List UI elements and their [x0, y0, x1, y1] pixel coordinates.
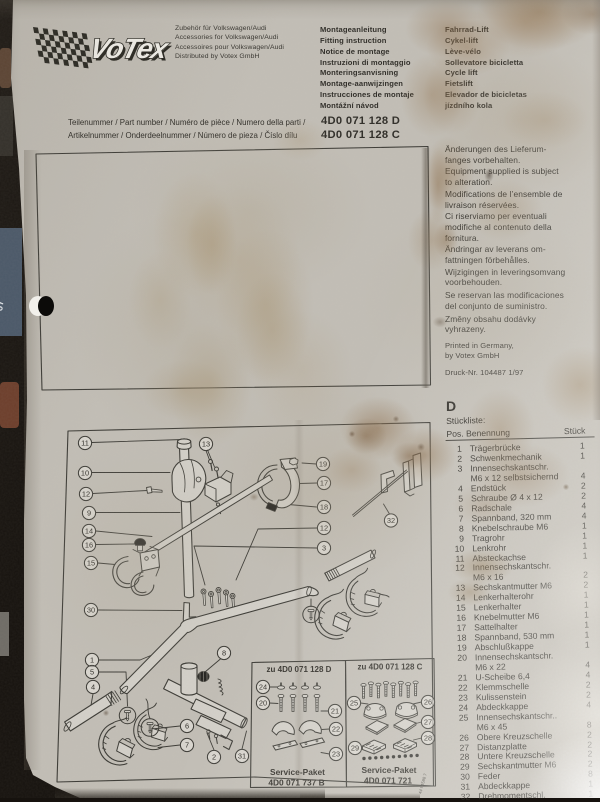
svg-text:24: 24 — [259, 683, 267, 692]
svg-text:3: 3 — [322, 544, 326, 553]
svg-text:VoTex: VoTex — [86, 33, 172, 65]
svg-text:4D0 071 737 B: 4D0 071 737 B — [268, 778, 324, 788]
svg-text:10: 10 — [81, 469, 89, 478]
svg-text:26: 26 — [424, 698, 432, 707]
svg-text:18: 18 — [320, 503, 328, 512]
svg-text:9: 9 — [87, 509, 91, 518]
svg-text:zu 4D0 071 128 D: zu 4D0 071 128 D — [267, 665, 332, 674]
svg-text:22: 22 — [332, 725, 340, 734]
svg-text:1: 1 — [90, 656, 94, 665]
svg-text:4D0 071 721: 4D0 071 721 — [364, 776, 412, 786]
svg-text:25: 25 — [350, 699, 358, 708]
svg-text:16: 16 — [85, 541, 93, 550]
svg-text:8: 8 — [222, 649, 226, 658]
svg-text:7: 7 — [185, 741, 189, 750]
svg-text:12: 12 — [320, 524, 328, 533]
svg-text:44 I 4598 7: 44 I 4598 7 — [417, 772, 427, 794]
svg-text:31: 31 — [238, 752, 246, 761]
svg-text:20: 20 — [259, 699, 267, 708]
svg-text:zu 4D0 071 128 C: zu 4D0 071 128 C — [358, 663, 423, 672]
svg-text:32: 32 — [387, 516, 395, 525]
svg-text:14: 14 — [85, 527, 93, 536]
svg-text:Service-Paket: Service-Paket — [362, 765, 417, 775]
svg-text:5: 5 — [90, 668, 94, 677]
svg-text:30: 30 — [87, 606, 95, 615]
svg-text:12: 12 — [82, 490, 90, 499]
svg-text:27: 27 — [424, 718, 432, 727]
svg-text:29: 29 — [351, 744, 359, 753]
svg-text:4: 4 — [91, 683, 95, 692]
svg-text:13: 13 — [202, 440, 210, 449]
svg-text:21: 21 — [331, 707, 339, 716]
svg-text:19: 19 — [319, 460, 327, 469]
svg-text:2: 2 — [212, 753, 216, 762]
svg-text:23: 23 — [332, 750, 340, 759]
svg-text:11: 11 — [81, 439, 89, 448]
svg-text:28: 28 — [424, 734, 432, 743]
svg-text:Service-Paket: Service-Paket — [270, 767, 325, 777]
svg-text:6: 6 — [185, 722, 189, 731]
svg-text:15: 15 — [87, 559, 95, 568]
svg-text:17: 17 — [320, 479, 328, 488]
